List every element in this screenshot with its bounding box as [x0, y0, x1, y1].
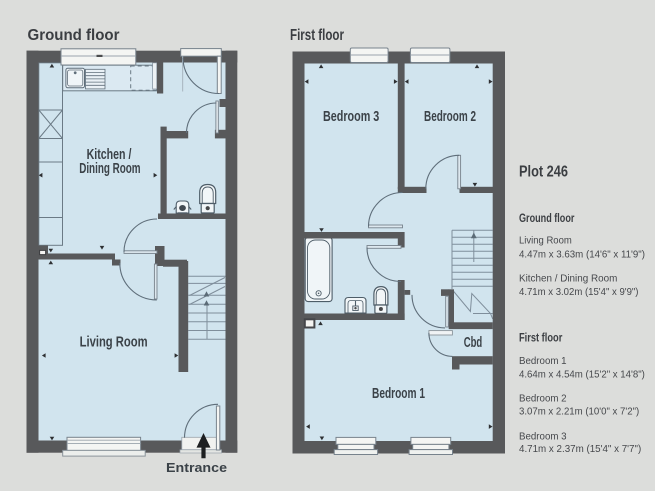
svg-text:Plot 246: Plot 246 — [519, 164, 568, 181]
svg-text:First floor: First floor — [519, 330, 563, 344]
svg-text:Cbd: Cbd — [464, 335, 483, 351]
svg-text:Entrance: Entrance — [166, 460, 227, 475]
svg-text:Dining Room: Dining Room — [79, 161, 140, 177]
svg-text:3.07m x 2.21m (10'0" x 7'2"): 3.07m x 2.21m (10'0" x 7'2") — [519, 406, 639, 418]
svg-text:Bedroom 3: Bedroom 3 — [519, 430, 567, 442]
svg-text:4.64m x 4.54m (15'2" x 14'8"): 4.64m x 4.54m (15'2" x 14'8") — [519, 368, 645, 380]
svg-text:Living Room: Living Room — [519, 235, 572, 247]
svg-text:Bedroom 1: Bedroom 1 — [372, 386, 425, 402]
svg-text:Bedroom 1: Bedroom 1 — [519, 355, 567, 367]
svg-text:Living Room: Living Room — [80, 335, 148, 351]
svg-text:Bedroom 3: Bedroom 3 — [323, 109, 379, 125]
svg-text:Ground floor: Ground floor — [519, 211, 575, 225]
svg-text:Bedroom 2: Bedroom 2 — [519, 393, 567, 405]
svg-text:4.71m x 2.37m (15'4" x 7'7"): 4.71m x 2.37m (15'4" x 7'7") — [519, 443, 641, 455]
svg-text:Kitchen / Dining Room: Kitchen / Dining Room — [519, 272, 618, 284]
svg-text:4.71m x 3.02m (15'4" x 9'9"): 4.71m x 3.02m (15'4" x 9'9") — [519, 286, 639, 298]
svg-text:4.47m x 3.63m (14'6" x 11'9"): 4.47m x 3.63m (14'6" x 11'9") — [519, 248, 645, 260]
svg-text:First floor: First floor — [290, 27, 344, 44]
svg-text:Bedroom 2: Bedroom 2 — [424, 109, 476, 125]
svg-text:Ground floor: Ground floor — [28, 27, 120, 44]
